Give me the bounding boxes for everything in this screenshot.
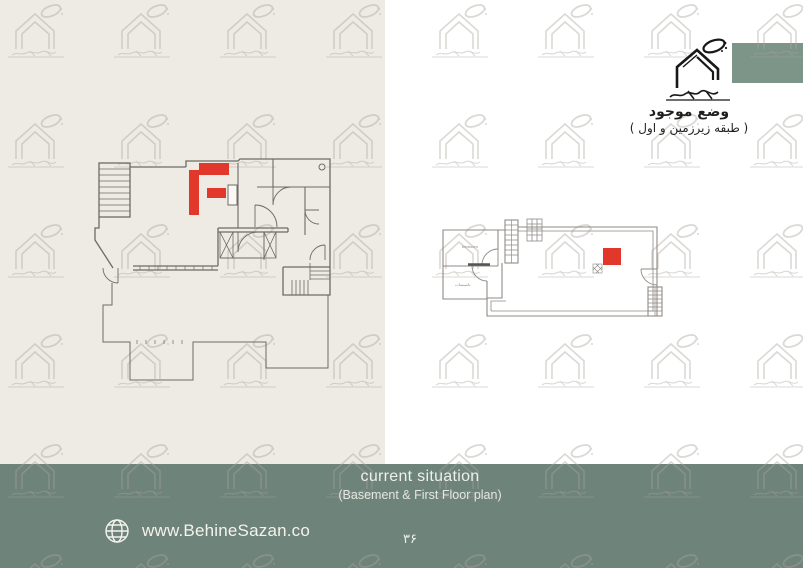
basement-bedroom: bedroom xyxy=(443,230,505,266)
highlight-walls-red xyxy=(189,163,229,215)
basement-stair-bottom xyxy=(648,287,662,316)
footer-caption: current situation (Basement & First Floo… xyxy=(0,468,803,502)
signature-icon xyxy=(666,91,730,100)
room-label: bedroom xyxy=(462,244,478,249)
swirl-icon xyxy=(702,38,727,55)
column-outline xyxy=(228,185,237,205)
room-label: تاسیسات xyxy=(455,282,470,287)
grid-symbol xyxy=(527,219,542,241)
basement-plan: bedroom تاسیسات xyxy=(443,219,662,316)
terrace-outline xyxy=(103,283,328,380)
header-title-block: وضع موجود ( طبقه زیرزمین و اول ) xyxy=(608,104,770,136)
website-url: www.BehineSazan.co xyxy=(142,521,310,541)
window-band xyxy=(133,266,218,270)
window-hatch xyxy=(220,232,276,258)
first-floor-plan xyxy=(95,159,330,380)
page-number: ۳۶ xyxy=(380,532,440,547)
highlight-column-red xyxy=(603,248,621,265)
page-subtitle-fa: ( طبقه زیرزمین و اول ) xyxy=(608,121,770,136)
website-row: www.BehineSazan.co xyxy=(104,518,310,544)
page-title-fa: وضع موجود xyxy=(608,104,770,120)
caption-title: current situation xyxy=(0,468,803,486)
basement-utility-room: تاسیسات xyxy=(443,266,487,299)
behinesazan-house-logo xyxy=(662,38,734,104)
globe-icon xyxy=(104,518,130,544)
staircase-top-left xyxy=(99,163,130,217)
hatched-square xyxy=(593,264,602,273)
staircase-bottom-right xyxy=(283,263,330,295)
door-arc xyxy=(641,269,657,285)
basement-stair-top xyxy=(505,220,518,263)
caption-subtitle: (Basement & First Floor plan) xyxy=(0,488,803,502)
